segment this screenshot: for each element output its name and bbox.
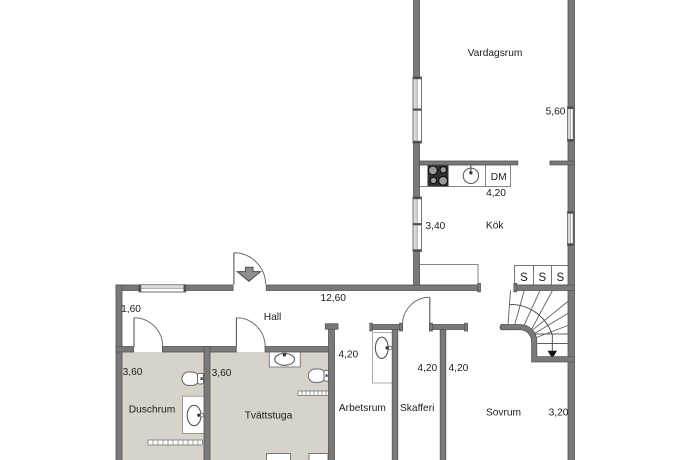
svg-text:Tvättstuga: Tvättstuga <box>245 411 293 422</box>
svg-text:12,60: 12,60 <box>320 293 346 304</box>
svg-text:Duschrum: Duschrum <box>129 405 175 416</box>
svg-text:S: S <box>520 272 528 284</box>
svg-text:4,20: 4,20 <box>338 350 358 361</box>
svg-text:3,20: 3,20 <box>549 407 569 418</box>
svg-text:Hall: Hall <box>264 312 282 323</box>
svg-text:Sovrum: Sovrum <box>486 407 521 418</box>
svg-text:S: S <box>556 272 564 284</box>
svg-text:5,60: 5,60 <box>546 106 566 117</box>
svg-text:3,60: 3,60 <box>123 367 143 378</box>
svg-text:4,20: 4,20 <box>486 188 506 199</box>
svg-text:Kök: Kök <box>486 220 504 231</box>
svg-text:Skafferi: Skafferi <box>400 403 434 414</box>
svg-text:4,20: 4,20 <box>417 363 437 374</box>
svg-text:1,60: 1,60 <box>121 304 141 315</box>
svg-text:4,20: 4,20 <box>448 363 468 374</box>
svg-text:Arbetsrum: Arbetsrum <box>339 403 386 414</box>
svg-text:Vardagsrum: Vardagsrum <box>468 48 523 59</box>
svg-text:3,40: 3,40 <box>425 221 445 232</box>
svg-text:3,60: 3,60 <box>212 368 232 379</box>
svg-text:DM: DM <box>491 172 507 183</box>
svg-text:S: S <box>538 272 546 284</box>
